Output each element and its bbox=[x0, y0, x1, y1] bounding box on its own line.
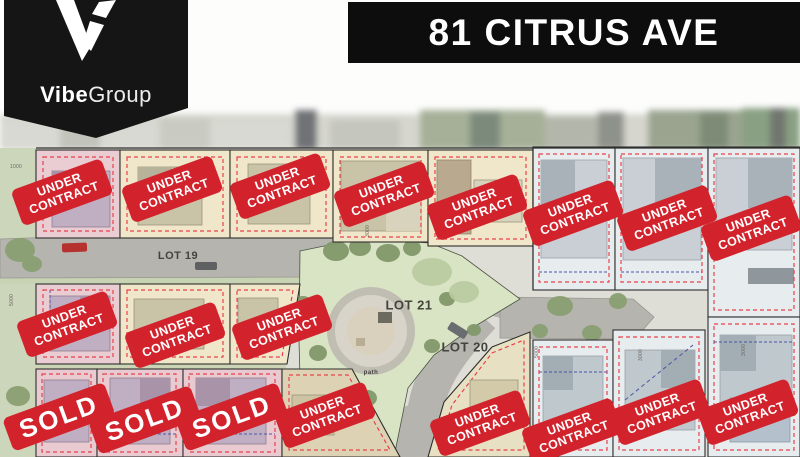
lot bbox=[120, 284, 230, 364]
brand-wordmark: VibeGroup bbox=[4, 82, 188, 108]
lot bbox=[230, 150, 333, 238]
flyer: LOT 19LOT 21LOT 20path100030005000300030… bbox=[0, 0, 800, 457]
car-red bbox=[62, 243, 87, 253]
lot bbox=[120, 150, 230, 238]
brand-logo: VibeGroup bbox=[4, 0, 188, 146]
lot bbox=[183, 369, 282, 457]
lot bbox=[615, 147, 708, 290]
lot bbox=[36, 284, 120, 364]
lot bbox=[36, 369, 97, 457]
verge-left bbox=[0, 148, 36, 457]
car-gray bbox=[195, 262, 217, 270]
lot bbox=[230, 284, 300, 364]
lot bbox=[428, 150, 533, 246]
lot bbox=[533, 340, 613, 457]
brand-name-bold: Vibe bbox=[40, 82, 88, 107]
brand-name-light: Group bbox=[88, 82, 152, 107]
lot-row1-left bbox=[36, 150, 533, 246]
page-title: 81 CITRUS AVE bbox=[429, 12, 720, 54]
lot bbox=[97, 369, 183, 457]
lot-row2-left bbox=[36, 284, 300, 364]
lot bbox=[708, 147, 800, 317]
title-banner: 81 CITRUS AVE bbox=[348, 2, 800, 63]
lot bbox=[613, 330, 705, 457]
pennant-shape bbox=[4, 0, 188, 138]
lot bbox=[533, 147, 615, 290]
lot bbox=[708, 317, 800, 457]
lot bbox=[333, 150, 428, 242]
lot bbox=[36, 150, 120, 238]
